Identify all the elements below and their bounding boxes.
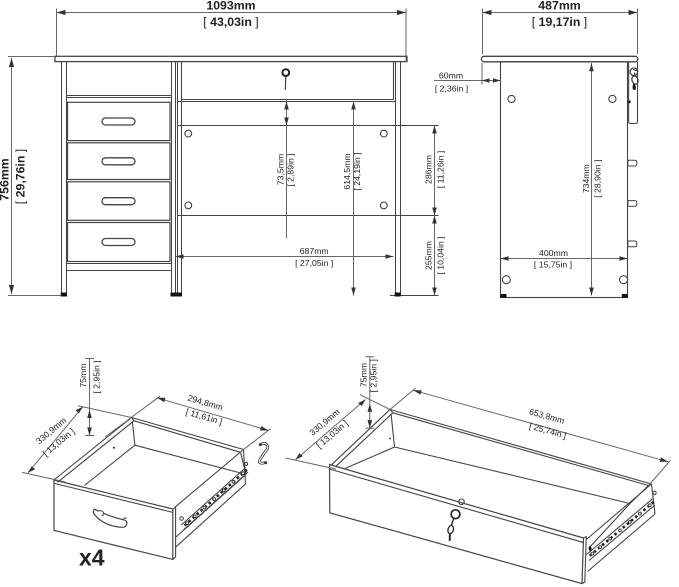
- svg-text:[ 24,19in ]: [ 24,19in ]: [352, 152, 362, 190]
- svg-text:400mm: 400mm: [539, 248, 568, 258]
- svg-text:[ 15,75in ]: [ 15,75in ]: [534, 260, 572, 270]
- svg-text:1093mm: 1093mm: [206, 0, 255, 13]
- svg-text:[ 11,26in ]: [ 11,26in ]: [436, 151, 446, 189]
- svg-text:614,5mm: 614,5mm: [342, 153, 352, 189]
- svg-text:[ 28,90in ]: [ 28,90in ]: [592, 160, 602, 198]
- svg-text:[ 29,76in ]: [ 29,76in ]: [14, 149, 28, 204]
- svg-text:[ 2,95in ]: [ 2,95in ]: [369, 359, 379, 392]
- svg-text:[ 27,05in ]: [ 27,05in ]: [295, 258, 333, 268]
- svg-text:487mm: 487mm: [538, 0, 580, 13]
- svg-text:[ 2,89in ]: [ 2,89in ]: [285, 153, 295, 186]
- svg-text:75mm: 75mm: [359, 363, 369, 387]
- svg-text:756mm: 756mm: [0, 158, 12, 200]
- svg-text:[ 2,95in ]: [ 2,95in ]: [92, 360, 102, 393]
- svg-text:[ 2,36in ]: [ 2,36in ]: [435, 84, 468, 94]
- svg-text:[ 10,04in ]: [ 10,04in ]: [436, 236, 446, 274]
- svg-text:[ 43,03in ]: [ 43,03in ]: [203, 15, 258, 29]
- svg-text:60mm: 60mm: [439, 71, 463, 81]
- svg-text:687mm: 687mm: [300, 246, 329, 256]
- svg-text:255mm: 255mm: [424, 241, 434, 270]
- svg-text:73,5mm: 73,5mm: [276, 154, 286, 185]
- svg-text:734mm: 734mm: [581, 164, 591, 193]
- svg-text:286mm: 286mm: [424, 155, 434, 184]
- svg-text:[ 19,17in ]: [ 19,17in ]: [532, 15, 587, 29]
- svg-text:x4: x4: [79, 545, 105, 571]
- svg-text:75mm: 75mm: [78, 364, 88, 388]
